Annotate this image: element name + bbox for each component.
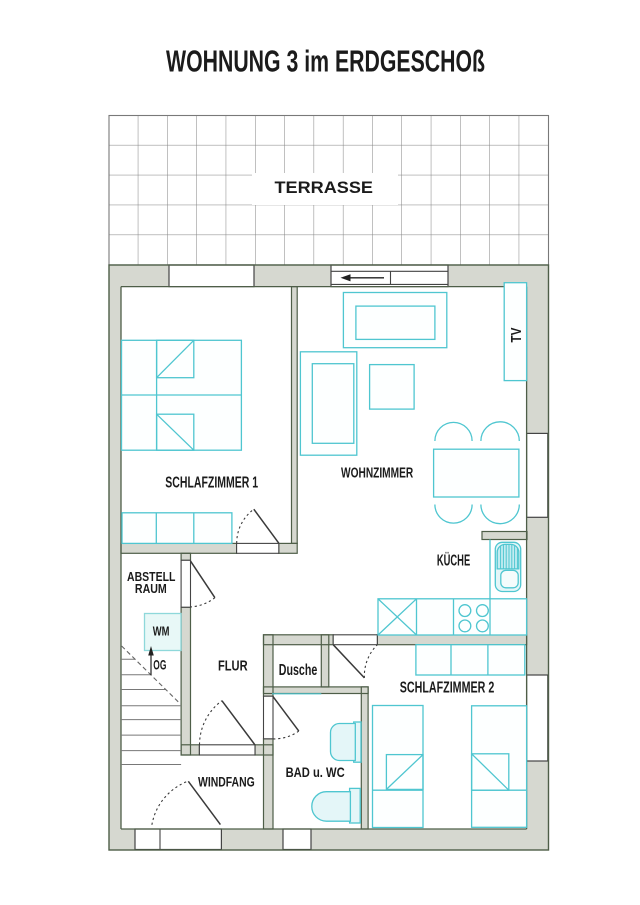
svg-text:WOHNZIMMER: WOHNZIMMER: [341, 465, 414, 481]
svg-text:OG: OG: [153, 656, 166, 672]
svg-text:WM: WM: [153, 624, 170, 639]
svg-text:RAUM: RAUM: [135, 582, 167, 596]
svg-text:KÜCHE: KÜCHE: [437, 552, 470, 569]
svg-text:FLUR: FLUR: [218, 657, 248, 674]
svg-text:TV: TV: [508, 328, 525, 343]
svg-text:WINDFANG: WINDFANG: [198, 775, 255, 791]
svg-text:SCHLAFZIMMER 1: SCHLAFZIMMER 1: [165, 474, 258, 491]
svg-text:BAD u. WC: BAD u. WC: [286, 764, 345, 780]
svg-text:SCHLAFZIMMER 2: SCHLAFZIMMER 2: [400, 680, 495, 697]
svg-text:TERRASSE: TERRASSE: [275, 178, 374, 197]
svg-text:Dusche: Dusche: [279, 662, 318, 679]
svg-text:WOHNUNG 3 im ERDGESCHOß: WOHNUNG 3 im ERDGESCHOß: [166, 44, 485, 79]
